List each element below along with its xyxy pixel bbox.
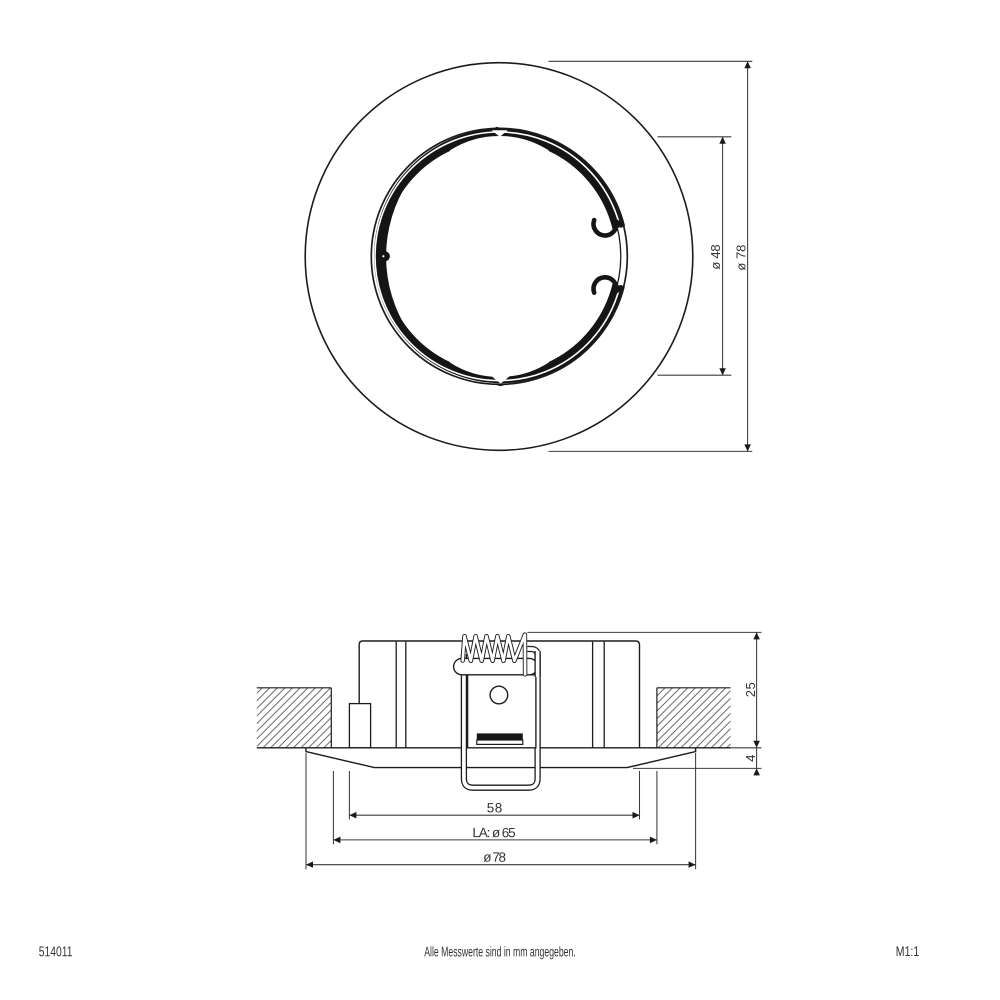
svg-text:25: 25 — [743, 682, 758, 697]
svg-text:LA: ø 65: LA: ø 65 — [472, 825, 515, 840]
svg-text:4: 4 — [743, 755, 758, 762]
svg-text:ø 48: ø 48 — [708, 244, 723, 269]
svg-text:514011: 514011 — [39, 944, 73, 960]
svg-text:Alle Messwerte sind in mm ange: Alle Messwerte sind in mm angegeben. — [424, 943, 576, 959]
svg-text:ø 78: ø 78 — [483, 850, 506, 865]
svg-text:M1:1: M1:1 — [896, 943, 920, 959]
svg-text:58: 58 — [487, 800, 503, 815]
svg-text:ø 78: ø 78 — [733, 245, 748, 271]
